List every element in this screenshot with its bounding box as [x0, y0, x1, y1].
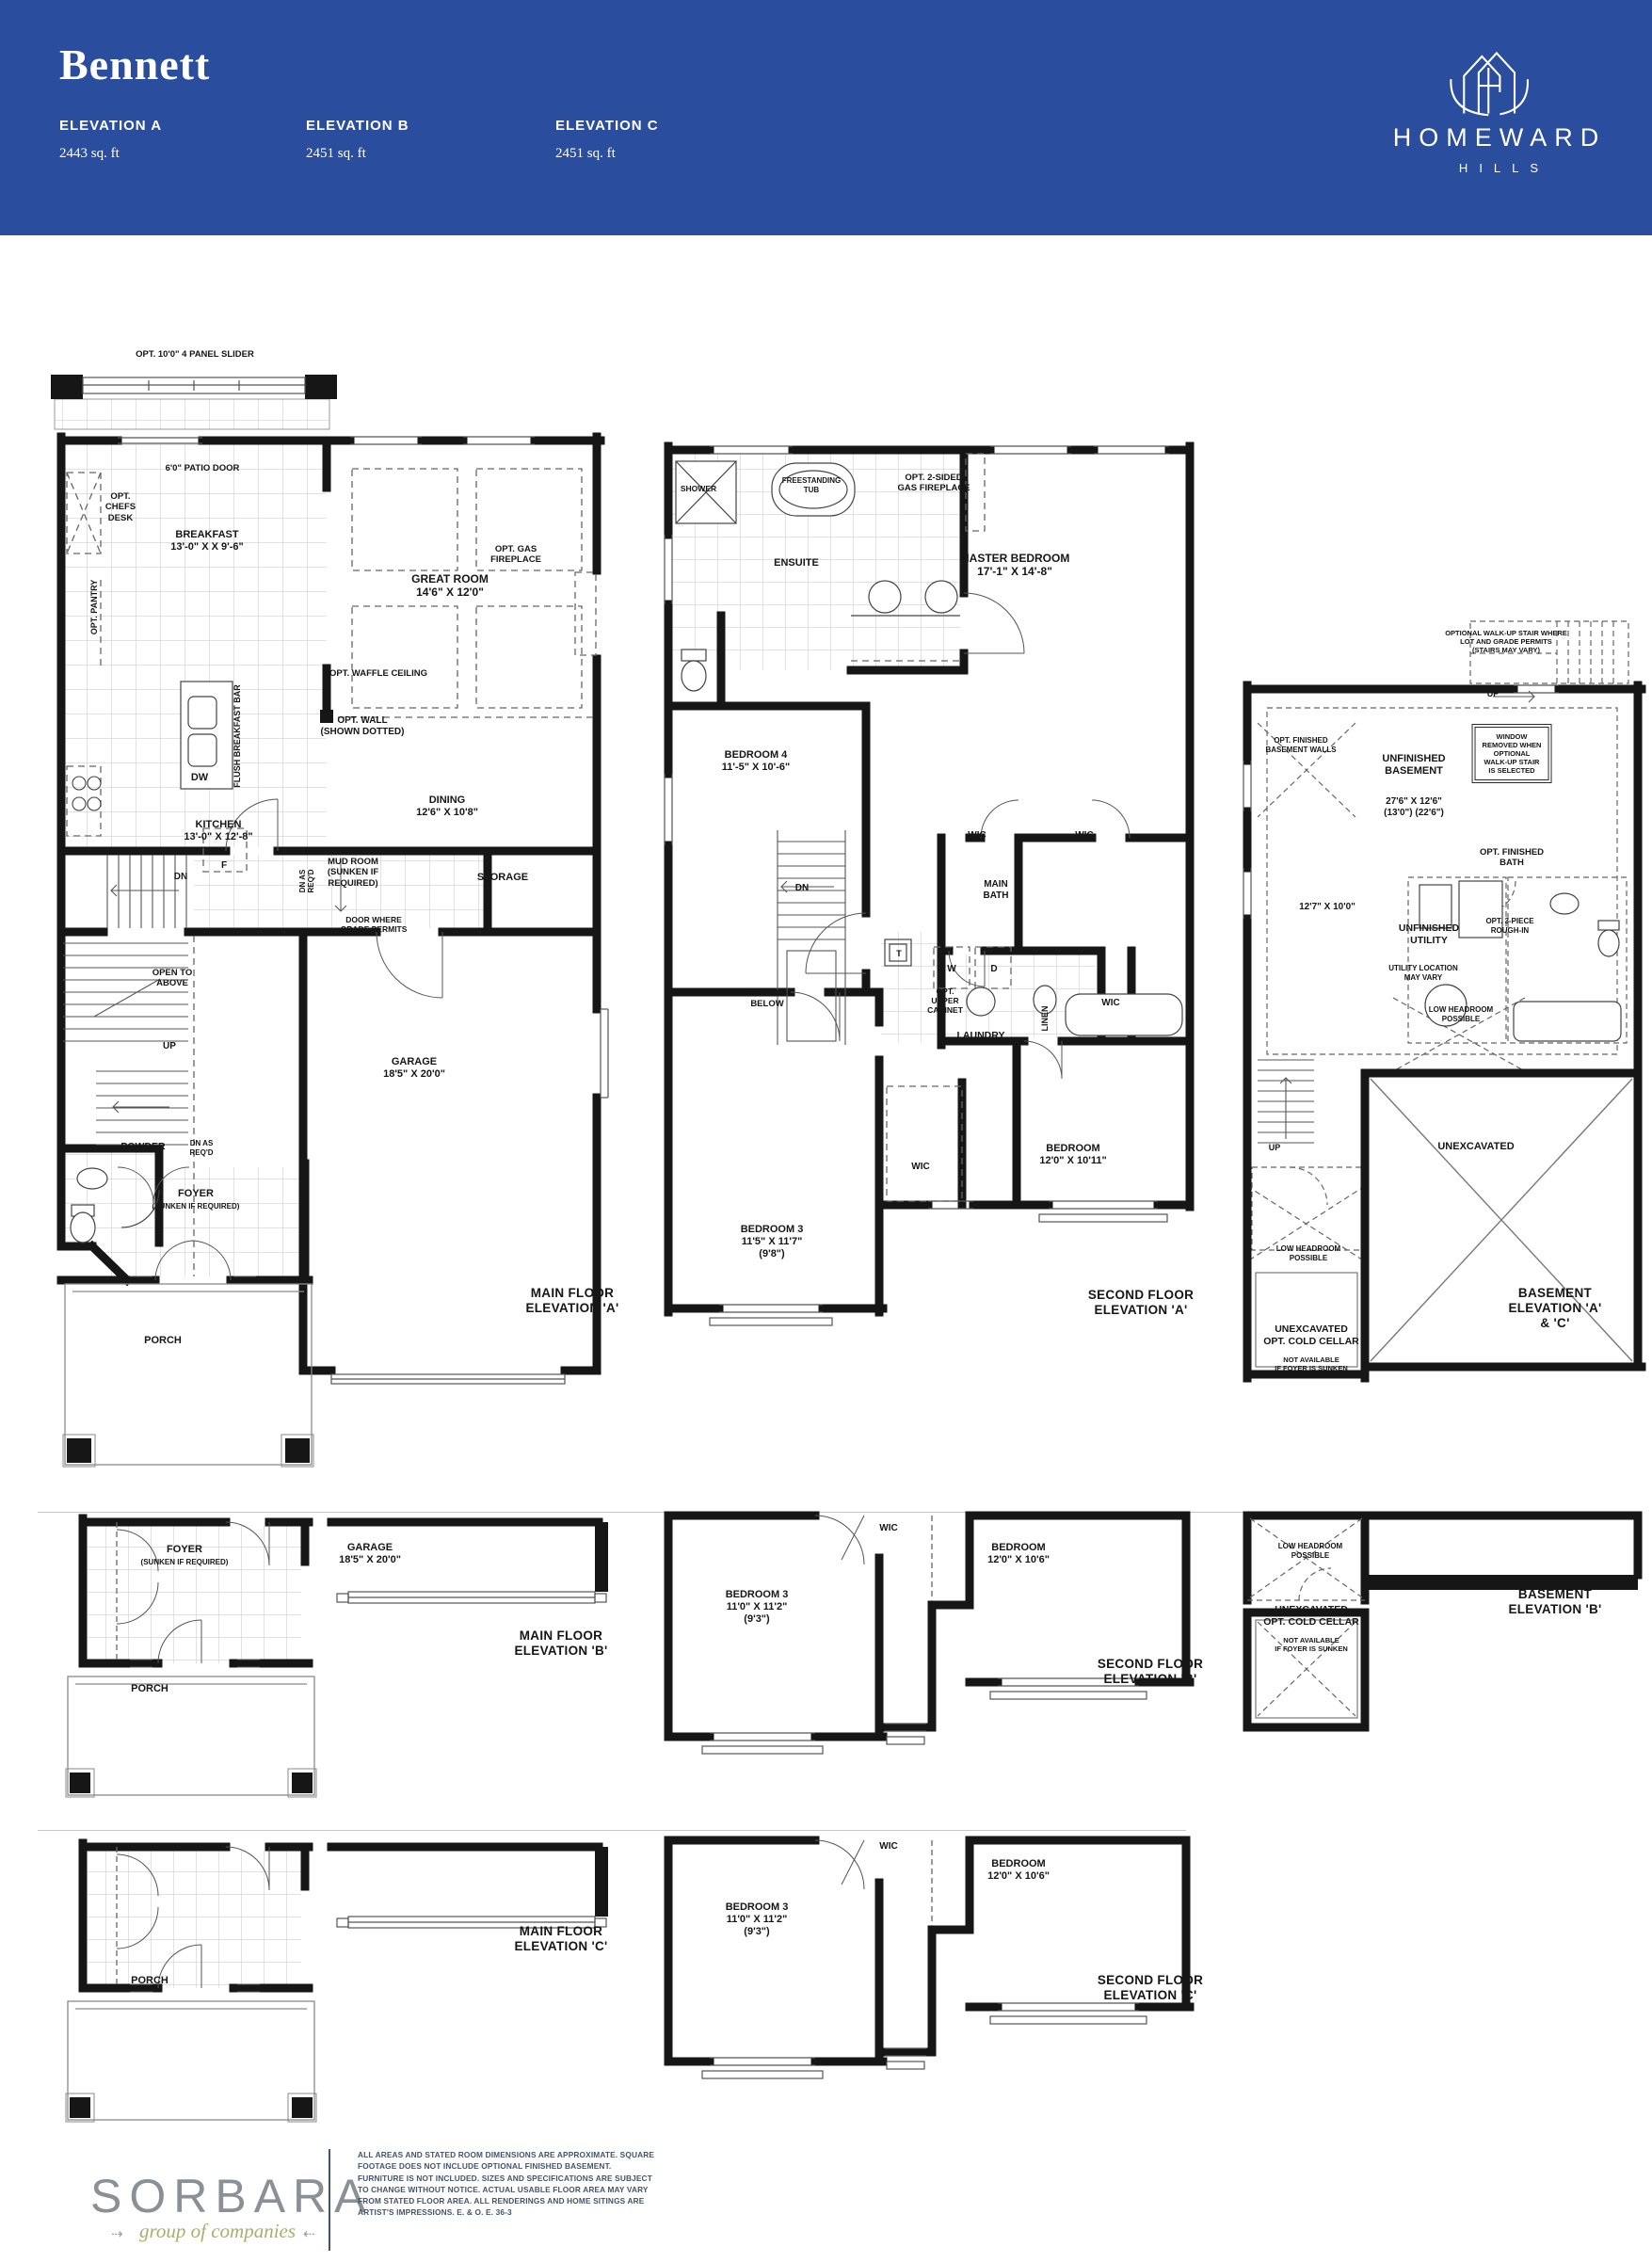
label-bedroom-b: BEDROOM 12'0" X 10'6"	[987, 1542, 1050, 1566]
label-fin-bath: OPT. FINISHED BATH	[1480, 847, 1544, 869]
elevation-a-sqft: 2443 sq. ft	[59, 147, 120, 161]
brochure-page: Bennett ELEVATION A 2443 sq. ft ELEVATIO…	[0, 0, 1652, 2262]
label-cold-cellar: UNEXCAVATED OPT. COLD CELLAR	[1263, 1324, 1359, 1347]
label-bedroom-a: BEDROOM 12'0" X 10'11"	[1039, 1143, 1106, 1167]
label-upper-cabinet: OPT. UPPER CABINET	[927, 987, 963, 1016]
label-up-bsmt-2: UP	[1269, 1143, 1281, 1153]
label-dw: DW	[191, 772, 208, 784]
label-bedroom3-a: BEDROOM 3 11'5" X 11'7" (9'8")	[741, 1224, 804, 1261]
caption-main-floor-a: MAIN FLOOR ELEVATION 'A'	[525, 1286, 618, 1316]
caption-main-floor-b: MAIN FLOOR ELEVATION 'B'	[514, 1628, 607, 1659]
label-master-bedroom: MASTER BEDROOM 17'-1" X 14'-8"	[960, 552, 1070, 579]
label-laundry: LAUNDRY	[957, 1030, 1005, 1042]
label-porch-c: PORCH	[131, 1975, 168, 1987]
caption-second-floor-c: SECOND FLOOR ELEVATION 'C'	[1098, 1973, 1203, 2003]
label-storage: STORAGE	[477, 872, 528, 884]
page-title: Bennett	[59, 43, 210, 87]
label-ensuite: ENSUITE	[774, 557, 819, 570]
label-garage-a: GARAGE 18'5" X 20'0"	[383, 1056, 445, 1081]
label-garage-b: GARAGE 18'5" X 20'0"	[339, 1542, 401, 1566]
label-patio-door: 6'0" PATIO DOOR	[166, 463, 240, 473]
label-mud-room: MUD ROOM (SUNKEN IF REQUIRED)	[328, 857, 378, 889]
label-dryer: D	[990, 964, 997, 975]
label-slider: OPT. 10'0" 4 PANEL SLIDER	[136, 349, 254, 360]
label-walkup-note: OPTIONAL WALK-UP STAIR WHERE LOT AND GRA…	[1445, 629, 1567, 654]
label-foyer-a-note: (SUNKEN IF REQUIRED)	[152, 1202, 240, 1211]
sorbara-logo: SORBARA	[90, 2173, 374, 2220]
label-shower: SHOWER	[681, 484, 716, 493]
caption-main-floor-c: MAIN FLOOR ELEVATION 'C'	[514, 1924, 607, 1954]
label-porch-b: PORCH	[131, 1683, 168, 1695]
label-linen: LINEN	[1040, 1006, 1050, 1032]
label-dn-as-reqd-2: DN AS REQ'D	[189, 1139, 213, 1157]
caption-basement-ac: BASEMENT ELEVATION 'A' & 'C'	[1507, 1286, 1604, 1332]
label-waffle-ceiling: OPT. WAFFLE CEILING	[329, 668, 427, 679]
elevation-b-name: ELEVATION B	[306, 119, 409, 133]
label-up-main: UP	[163, 1041, 176, 1052]
dashed-arrow-right-icon: ⇠	[303, 2227, 315, 2241]
label-gas-fireplace: OPT. GAS FIREPLACE	[490, 544, 541, 566]
label-dining: DINING 12'6" X 10'8"	[416, 794, 478, 819]
label-wic-b: WIC	[879, 1523, 897, 1534]
label-flush-bar: FLUSH BREAKFAST BAR	[233, 684, 242, 788]
elevation-c-name: ELEVATION C	[555, 119, 659, 133]
label-cold-cellar-b: UNEXCAVATED OPT. COLD CELLAR	[1263, 1604, 1359, 1628]
label-low-headroom-2: LOW HEADROOM POSSIBLE	[1276, 1244, 1340, 1262]
header-banner: Bennett ELEVATION A 2443 sq. ft ELEVATIO…	[0, 0, 1652, 235]
label-pantry: OPT. PANTRY	[89, 580, 99, 635]
label-2sided-fireplace: OPT. 2-SIDED GAS FIREPLACE	[897, 473, 970, 494]
label-breakfast: BREAKFAST 13'-0" X X 9'-6"	[170, 529, 243, 553]
label-porch-a: PORCH	[144, 1335, 182, 1347]
label-dn: DN	[174, 872, 187, 883]
sorbara-logo-subtext: group of companies	[139, 2222, 296, 2241]
label-wic-c: WIC	[879, 1841, 897, 1853]
label-tub: FREESTANDING TUB	[782, 476, 842, 494]
label-foyer-b-note: (SUNKEN IF REQUIRED)	[141, 1558, 229, 1567]
label-rough-in: OPT. 3-PIECE ROUGH-IN	[1485, 917, 1533, 935]
footer-disclaimer: ALL AREAS AND STATED ROOM DIMENSIONS ARE…	[358, 2149, 655, 2219]
elevation-a-name: ELEVATION A	[59, 119, 162, 133]
label-foyer-b: FOYER	[167, 1544, 202, 1556]
label-open-below: OPEN TO BELOW	[747, 988, 788, 1010]
label-bsmt-dims-2: 12'7" X 10'0"	[1299, 902, 1355, 913]
label-bedroom-c: BEDROOM 12'0" X 10'6"	[987, 1858, 1050, 1883]
label-cold-cellar-b-note: NOT AVAILABLE IF FOYER IS SUNKEN	[1275, 1636, 1348, 1653]
label-chefs-desk: OPT. CHEFS DESK	[105, 491, 136, 523]
label-wic-2: WIC	[1075, 830, 1093, 842]
dashed-arrow-left-icon: ⇢	[111, 2227, 123, 2241]
label-door-grade: DOOR WHERE GRADE PERMITS	[341, 915, 408, 934]
label-unexcavated: UNEXCAVATED	[1437, 1141, 1514, 1153]
label-cold-cellar-note: NOT AVAILABLE IF FOYER IS SUNKEN	[1275, 1356, 1348, 1372]
label-unfinished-basement: UNFINISHED BASEMENT	[1382, 753, 1445, 778]
label-dn-2f: DN	[795, 883, 809, 894]
label-low-headroom-1: LOW HEADROOM POSSIBLE	[1429, 1005, 1493, 1023]
main-floor-c-plan	[38, 1826, 626, 2137]
label-fin-walls: OPT. FINISHED BASEMENT WALLS	[1265, 736, 1336, 754]
label-bedroom3-c: BEDROOM 3 11'0" X 11'2" (9'3")	[726, 1901, 789, 1939]
label-open-above: OPEN TO ABOVE	[152, 968, 193, 989]
label-great-room: GREAT ROOM 14'6" X 12'0"	[411, 572, 489, 600]
label-window-removed: WINDOW REMOVED WHEN OPTIONAL WALK-UP STA…	[1475, 727, 1549, 780]
label-bsmt-dims: 27'6" X 12'6" (13'0") (22'6")	[1384, 796, 1444, 819]
homeward-hills-logo-icon	[1438, 43, 1542, 117]
label-wic-4: WIC	[911, 1162, 929, 1173]
label-up-bsmt-1: UP	[1487, 689, 1500, 699]
label-dn-as-reqd: DN AS REQ'D	[298, 869, 315, 892]
caption-second-floor-b: SECOND FLOOR ELEVATION 'B'	[1098, 1657, 1203, 1687]
footer-divider	[329, 2149, 330, 2251]
label-wic-1: WIC	[968, 830, 986, 842]
label-washer: W	[947, 964, 955, 975]
caption-second-floor-a: SECOND FLOOR ELEVATION 'A'	[1088, 1288, 1194, 1318]
label-fridge: F	[221, 860, 227, 872]
label-bedroom4: BEDROOM 4 11'-5" X 10'-6"	[722, 749, 791, 774]
label-wic-3: WIC	[1101, 998, 1119, 1009]
label-foyer-a: FOYER	[178, 1188, 214, 1200]
label-utility-location: UTILITY LOCATION MAY VARY	[1388, 964, 1457, 982]
brand-subname: HILLS	[1459, 162, 1549, 174]
label-low-headroom-b: LOW HEADROOM POSSIBLE	[1278, 1542, 1342, 1560]
label-main-bath: MAIN BATH	[983, 879, 1008, 902]
elevation-b-sqft: 2451 sq. ft	[306, 147, 366, 161]
label-opt-wall: OPT. WALL (SHOWN DOTTED)	[321, 715, 405, 738]
elevation-c-sqft: 2451 sq. ft	[555, 147, 616, 161]
second-floor-a-plan	[650, 424, 1205, 1327]
label-powder: POWDER	[120, 1141, 165, 1153]
label-kitchen: KITCHEN 13'-0" X 12'-8"	[184, 819, 252, 843]
caption-basement-b: BASEMENT ELEVATION 'B'	[1508, 1587, 1601, 1617]
brand-name: HOMEWARD	[1393, 125, 1607, 151]
label-laundry-tub: T	[896, 949, 902, 959]
label-bedroom3-b: BEDROOM 3 11'0" X 11'2" (9'3")	[726, 1589, 789, 1627]
label-unfinished-utility: UNFINISHED UTILITY	[1399, 922, 1459, 946]
